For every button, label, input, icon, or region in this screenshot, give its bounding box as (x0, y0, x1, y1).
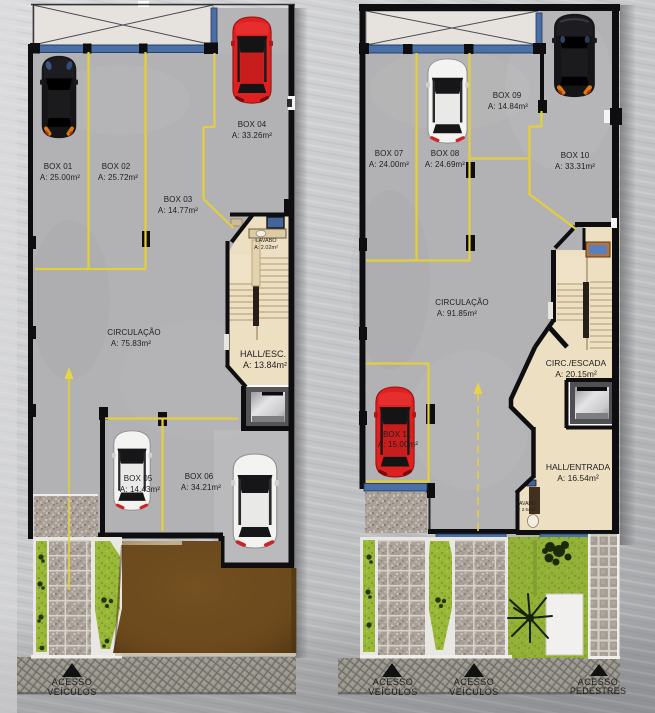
svg-text:BOX 03: BOX 03 (164, 195, 193, 204)
svg-text:BOX 08: BOX 08 (431, 149, 460, 158)
svg-text:A: 33.26m²: A: 33.26m² (232, 131, 272, 140)
svg-text:A: 25.00m²: A: 25.00m² (40, 173, 80, 182)
svg-text:ACESSO: ACESSO (373, 677, 414, 687)
svg-text:A: 75.83m²: A: 75.83m² (111, 339, 151, 348)
svg-text:HALL/ESC.: HALL/ESC. (240, 349, 286, 359)
svg-text:A: 15.00m²: A: 15.00m² (378, 440, 418, 449)
svg-text:BOX 11: BOX 11 (383, 430, 411, 439)
svg-text:HALL/ENTRADA: HALL/ENTRADA (546, 462, 611, 472)
svg-text:CIRCULAÇÃO: CIRCULAÇÃO (435, 298, 488, 307)
svg-text:BOX 05: BOX 05 (124, 474, 153, 483)
svg-text:A: 14.43m²: A: 14.43m² (120, 485, 160, 494)
svg-text:BOX 09: BOX 09 (493, 91, 522, 100)
svg-text:CIRCULAÇÃO: CIRCULAÇÃO (107, 328, 160, 337)
svg-text:A: 14.77m²: A: 14.77m² (158, 206, 198, 215)
svg-text:A: 91.85m²: A: 91.85m² (437, 309, 477, 318)
svg-text:A: 25.72m²: A: 25.72m² (98, 173, 138, 182)
svg-text:A: 33.31m²: A: 33.31m² (555, 162, 595, 171)
svg-text:LAVABO: LAVABO (255, 238, 277, 244)
svg-text:A: 14.84m²: A: 14.84m² (488, 102, 528, 111)
svg-text:ACESSO: ACESSO (52, 677, 93, 687)
svg-text:A: 24.69m²: A: 24.69m² (425, 160, 465, 169)
svg-text:VEÍCULOS: VEÍCULOS (449, 687, 499, 697)
svg-text:ACESSO: ACESSO (454, 677, 495, 687)
svg-text:BOX 04: BOX 04 (238, 120, 267, 129)
svg-text:BOX 06: BOX 06 (185, 472, 214, 481)
svg-text:PEDESTRES: PEDESTRES (570, 686, 626, 696)
svg-text:A: 34.21m²: A: 34.21m² (181, 483, 221, 492)
svg-text:BOX 07: BOX 07 (375, 149, 404, 158)
svg-text:A: 13.84m²: A: 13.84m² (243, 360, 287, 370)
svg-text:A: 2.54m²: A: 2.54m² (516, 507, 536, 512)
svg-text:A: 20.15m²: A: 20.15m² (555, 369, 597, 379)
svg-text:VEÍCULOS: VEÍCULOS (368, 687, 418, 697)
svg-text:BOX 10: BOX 10 (561, 151, 590, 160)
svg-text:CIRC./ESCADA: CIRC./ESCADA (546, 358, 607, 368)
svg-text:BOX 01: BOX 01 (44, 162, 73, 171)
svg-text:A: 16.54m²: A: 16.54m² (557, 473, 599, 483)
svg-text:BOX 02: BOX 02 (102, 162, 131, 171)
svg-text:A: 2.02m²: A: 2.02m² (254, 245, 278, 251)
svg-text:VEÍCULOS: VEÍCULOS (47, 687, 97, 697)
svg-text:A: 24.00m²: A: 24.00m² (369, 160, 409, 169)
